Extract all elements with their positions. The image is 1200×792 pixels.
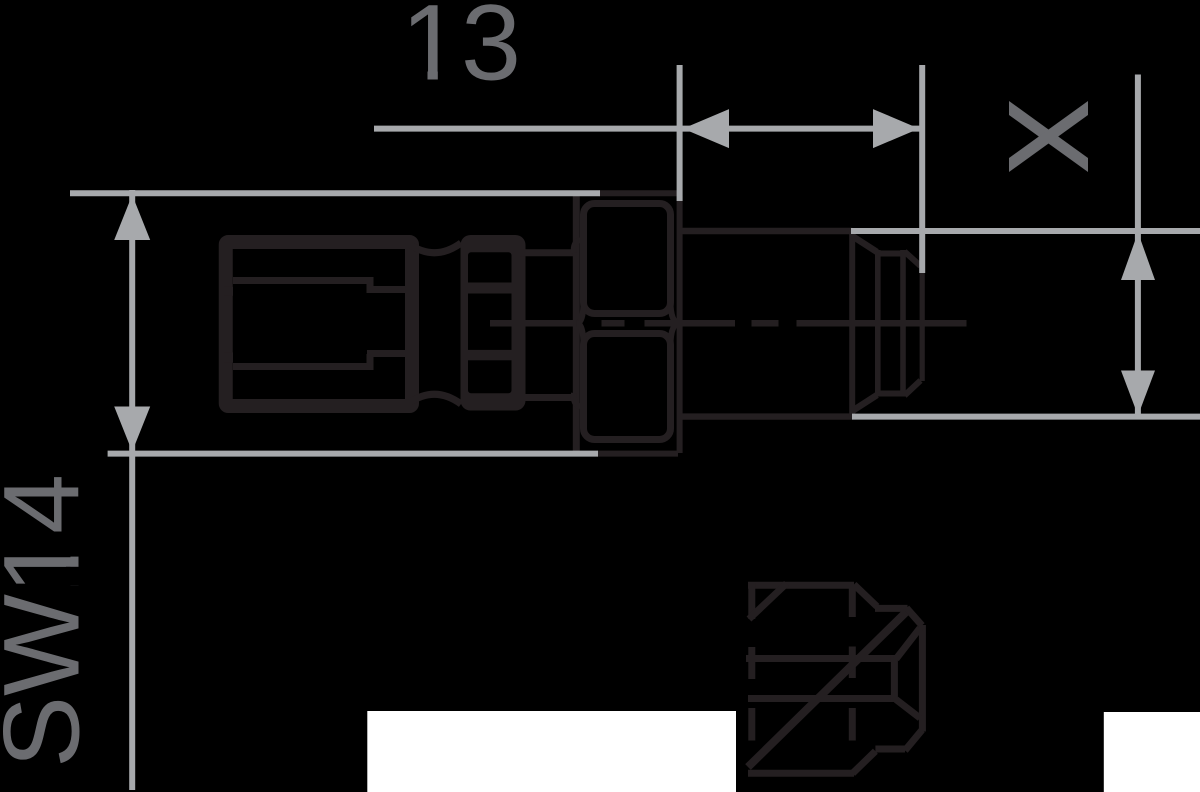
svg-text:SW14: SW14 (0, 474, 102, 768)
svg-text:13: 13 (401, 0, 521, 103)
